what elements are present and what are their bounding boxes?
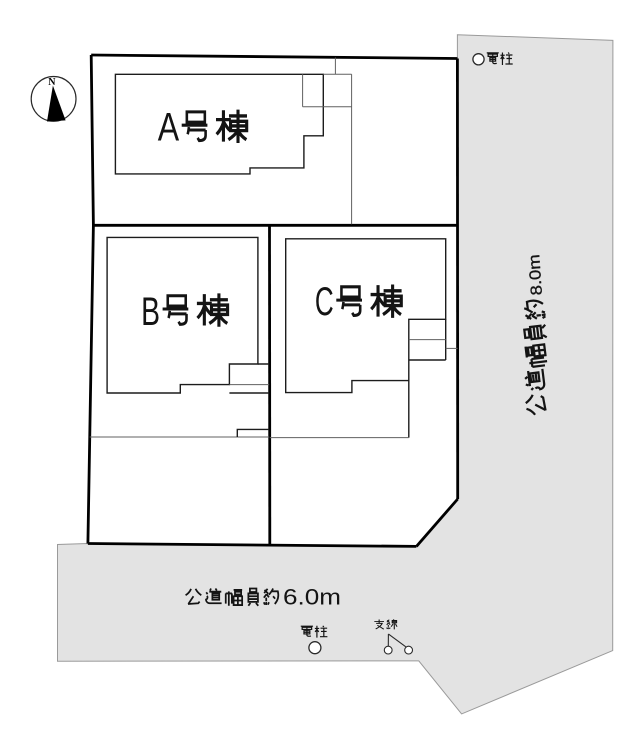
- svg-text:8.0m: 8.0m: [526, 254, 546, 296]
- svg-text:N: N: [48, 77, 56, 88]
- svg-text:6.0m: 6.0m: [283, 585, 341, 610]
- svg-text:B: B: [141, 290, 160, 334]
- svg-text:A: A: [158, 105, 180, 149]
- svg-text:C: C: [315, 280, 334, 324]
